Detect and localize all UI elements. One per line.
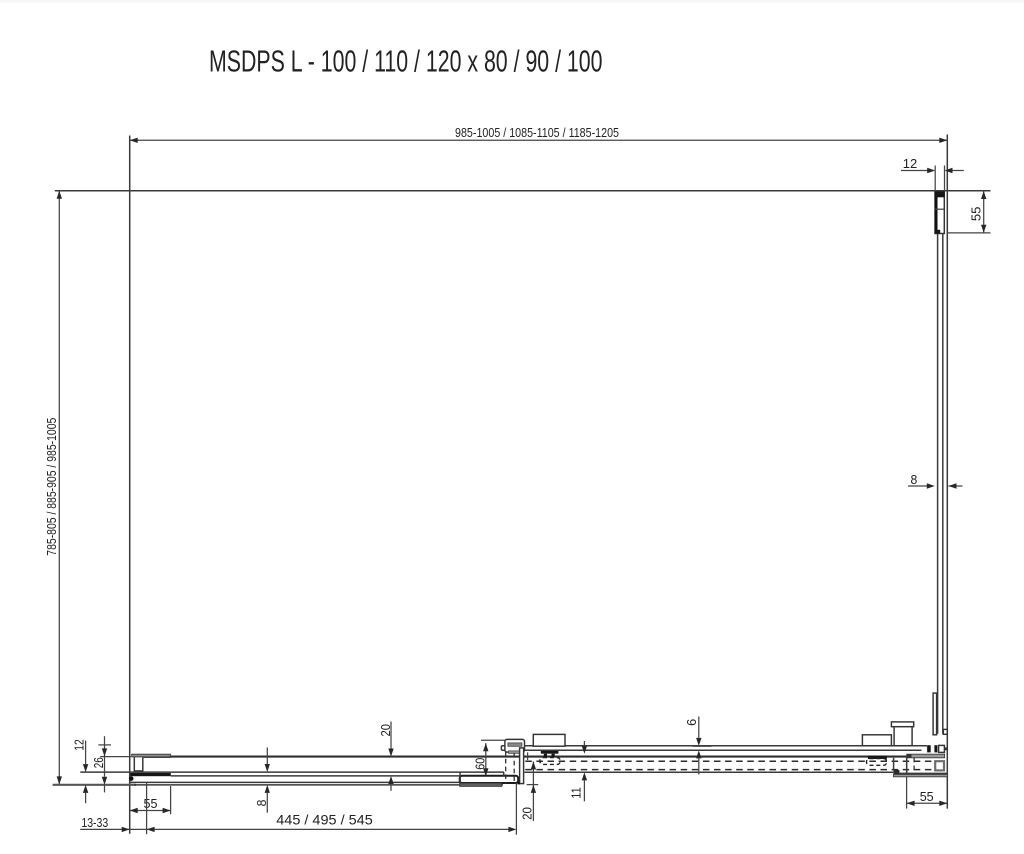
- svg-text:20: 20: [521, 807, 535, 820]
- svg-text:12: 12: [903, 157, 918, 171]
- svg-text:20: 20: [379, 724, 393, 737]
- svg-text:12: 12: [72, 739, 86, 751]
- svg-text:6: 6: [685, 719, 699, 726]
- svg-text:60: 60: [473, 758, 487, 770]
- svg-text:55: 55: [144, 797, 158, 811]
- svg-text:55: 55: [970, 207, 984, 222]
- svg-text:13-33: 13-33: [81, 816, 108, 830]
- svg-text:785-805 / 885-905 / 985-1005: 785-805 / 885-905 / 985-1005: [45, 418, 59, 556]
- svg-text:26: 26: [92, 757, 106, 768]
- svg-text:8: 8: [911, 473, 918, 487]
- svg-text:MSDPS L - 100 / 110 / 120 x 80: MSDPS L - 100 / 110 / 120 x 80 / 90 / 10…: [209, 45, 603, 79]
- svg-text:8: 8: [255, 800, 269, 807]
- svg-text:445 / 495 / 545: 445 / 495 / 545: [276, 812, 373, 828]
- svg-text:11: 11: [570, 787, 584, 799]
- svg-text:985-1005 / 1085-1105 / 1185-12: 985-1005 / 1085-1105 / 1185-1205: [455, 126, 619, 140]
- svg-text:55: 55: [920, 790, 934, 804]
